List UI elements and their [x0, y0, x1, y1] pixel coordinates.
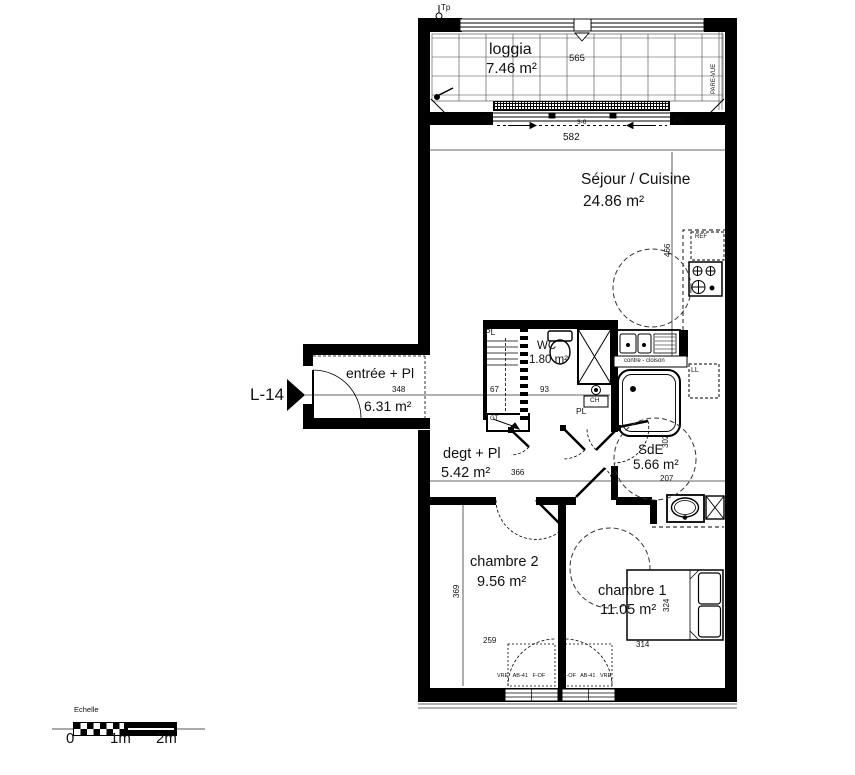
spout-triangle-icon — [575, 33, 589, 41]
chambre2-area: 9.56 m² — [477, 575, 526, 590]
fridge-label: REF — [695, 234, 707, 240]
washing-machine-label: LL — [691, 367, 699, 374]
pillow — [699, 606, 721, 637]
placard-hall-label: PL — [576, 407, 586, 416]
chambre2-name: chambre 2 — [470, 555, 539, 570]
sde-area: 5.66 m² — [633, 458, 679, 472]
bay-code-label: 3-6 — [577, 120, 586, 127]
chambre1-door-leaf — [576, 468, 605, 497]
dim-degagement-width: 366 — [511, 469, 524, 477]
dim-wc-width: 93 — [540, 386, 549, 394]
unit-label: L-14 — [250, 386, 284, 403]
wc-name: WC — [537, 341, 556, 353]
dim-chambre2-depth: 369 — [453, 585, 461, 598]
placard-closet-label: PL — [485, 328, 495, 337]
loggia-area: 7.46 m² — [486, 61, 537, 76]
loggia-floor-tiles — [432, 32, 723, 110]
chambre1-area: 11.05 m² — [600, 603, 656, 618]
wc-area: 1.80 m² — [529, 355, 568, 367]
dim-entree-width: 348 — [392, 386, 405, 394]
sde-name: SdE — [638, 443, 664, 457]
dim-chambre1-depth: 324 — [663, 599, 671, 612]
floor-plan-page: Tp loggia 7.46 m² 565 PARE-VUE VRE 3-6 P… — [0, 0, 855, 775]
slide-arrow-left-icon — [627, 123, 633, 129]
chambre1-name: chambre 1 — [598, 584, 667, 599]
scale-tick-0: 0 — [66, 731, 74, 746]
cooktop — [689, 262, 722, 296]
pc-label: PC — [674, 118, 683, 125]
loggia-name: loggia — [489, 42, 532, 58]
unit-arrow — [287, 379, 305, 411]
unit-arrow-icon — [287, 379, 305, 411]
degagement-name: degt + Pl — [443, 447, 501, 462]
dim-pl-width: 67 — [490, 386, 499, 394]
degagement-area: 5.42 m² — [441, 466, 490, 481]
dim-chambre1-width: 314 — [636, 641, 649, 649]
dim-sejour-width: 582 — [563, 133, 580, 143]
insulated-wall — [520, 328, 528, 420]
shower-drain — [631, 387, 636, 392]
upper-window-left — [460, 19, 574, 31]
scale-title: Echelle — [74, 706, 99, 714]
upper-window-right — [591, 19, 704, 31]
contre-cloison-label: contre - cloison — [624, 358, 665, 364]
dim-loggia-width: 565 — [569, 54, 585, 64]
rainwater-drain-icon — [435, 95, 440, 100]
tp-label: Tp — [441, 4, 450, 12]
floor-plan-svg — [0, 0, 855, 775]
dim-sde-width: 207 — [660, 475, 673, 483]
slide-arrow-right-icon — [530, 123, 536, 129]
window-left-label: VRE AB-41 F-OF — [497, 674, 545, 680]
sejour-area: 24.86 m² — [583, 194, 644, 210]
window-right-label: F-OF AB-41 VRE — [563, 674, 611, 680]
scale-tick-1m: 1m — [110, 731, 131, 746]
pillow — [699, 573, 721, 604]
entree-name: entrée + Pl — [346, 366, 414, 380]
water-heater-label: CH — [590, 398, 599, 405]
scale-tick-2m: 2m — [156, 731, 177, 746]
gaine-technique-label: GT — [490, 416, 498, 422]
dim-chambre2-width: 259 — [483, 637, 496, 645]
pare-vue-label: PARE-VUE — [711, 64, 717, 94]
dim-sejour-depth: 466 — [664, 244, 672, 257]
downpipe-box — [574, 19, 591, 31]
sejour-name: Séjour / Cuisine — [581, 172, 690, 188]
dim-sde-depth: 302 — [662, 435, 670, 448]
loggia-balustrade — [493, 101, 670, 111]
entree-area: 6.31 m² — [364, 399, 411, 413]
vre-loggia-label: VRE — [480, 116, 493, 123]
turning-circles — [570, 249, 696, 608]
